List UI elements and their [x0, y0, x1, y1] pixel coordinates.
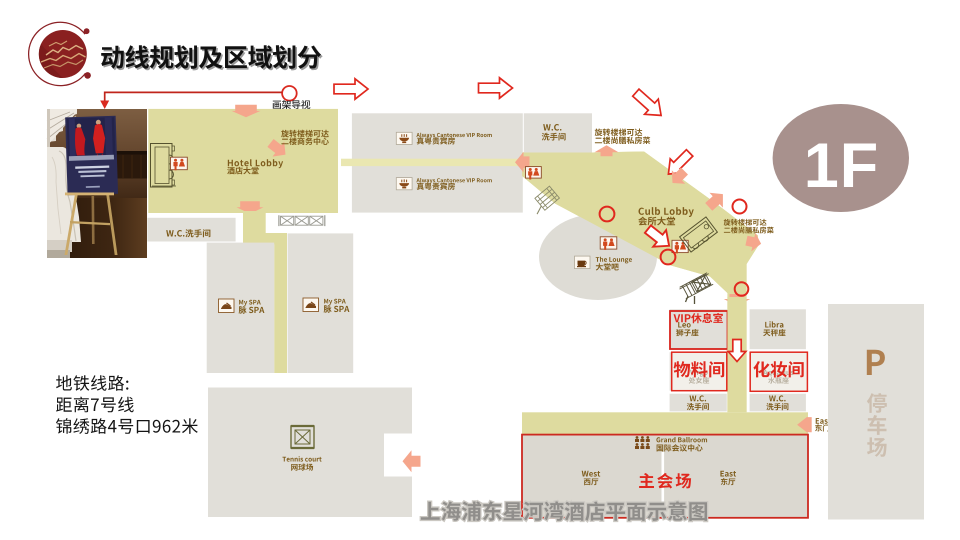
- svg-text:1F: 1F: [804, 131, 880, 201]
